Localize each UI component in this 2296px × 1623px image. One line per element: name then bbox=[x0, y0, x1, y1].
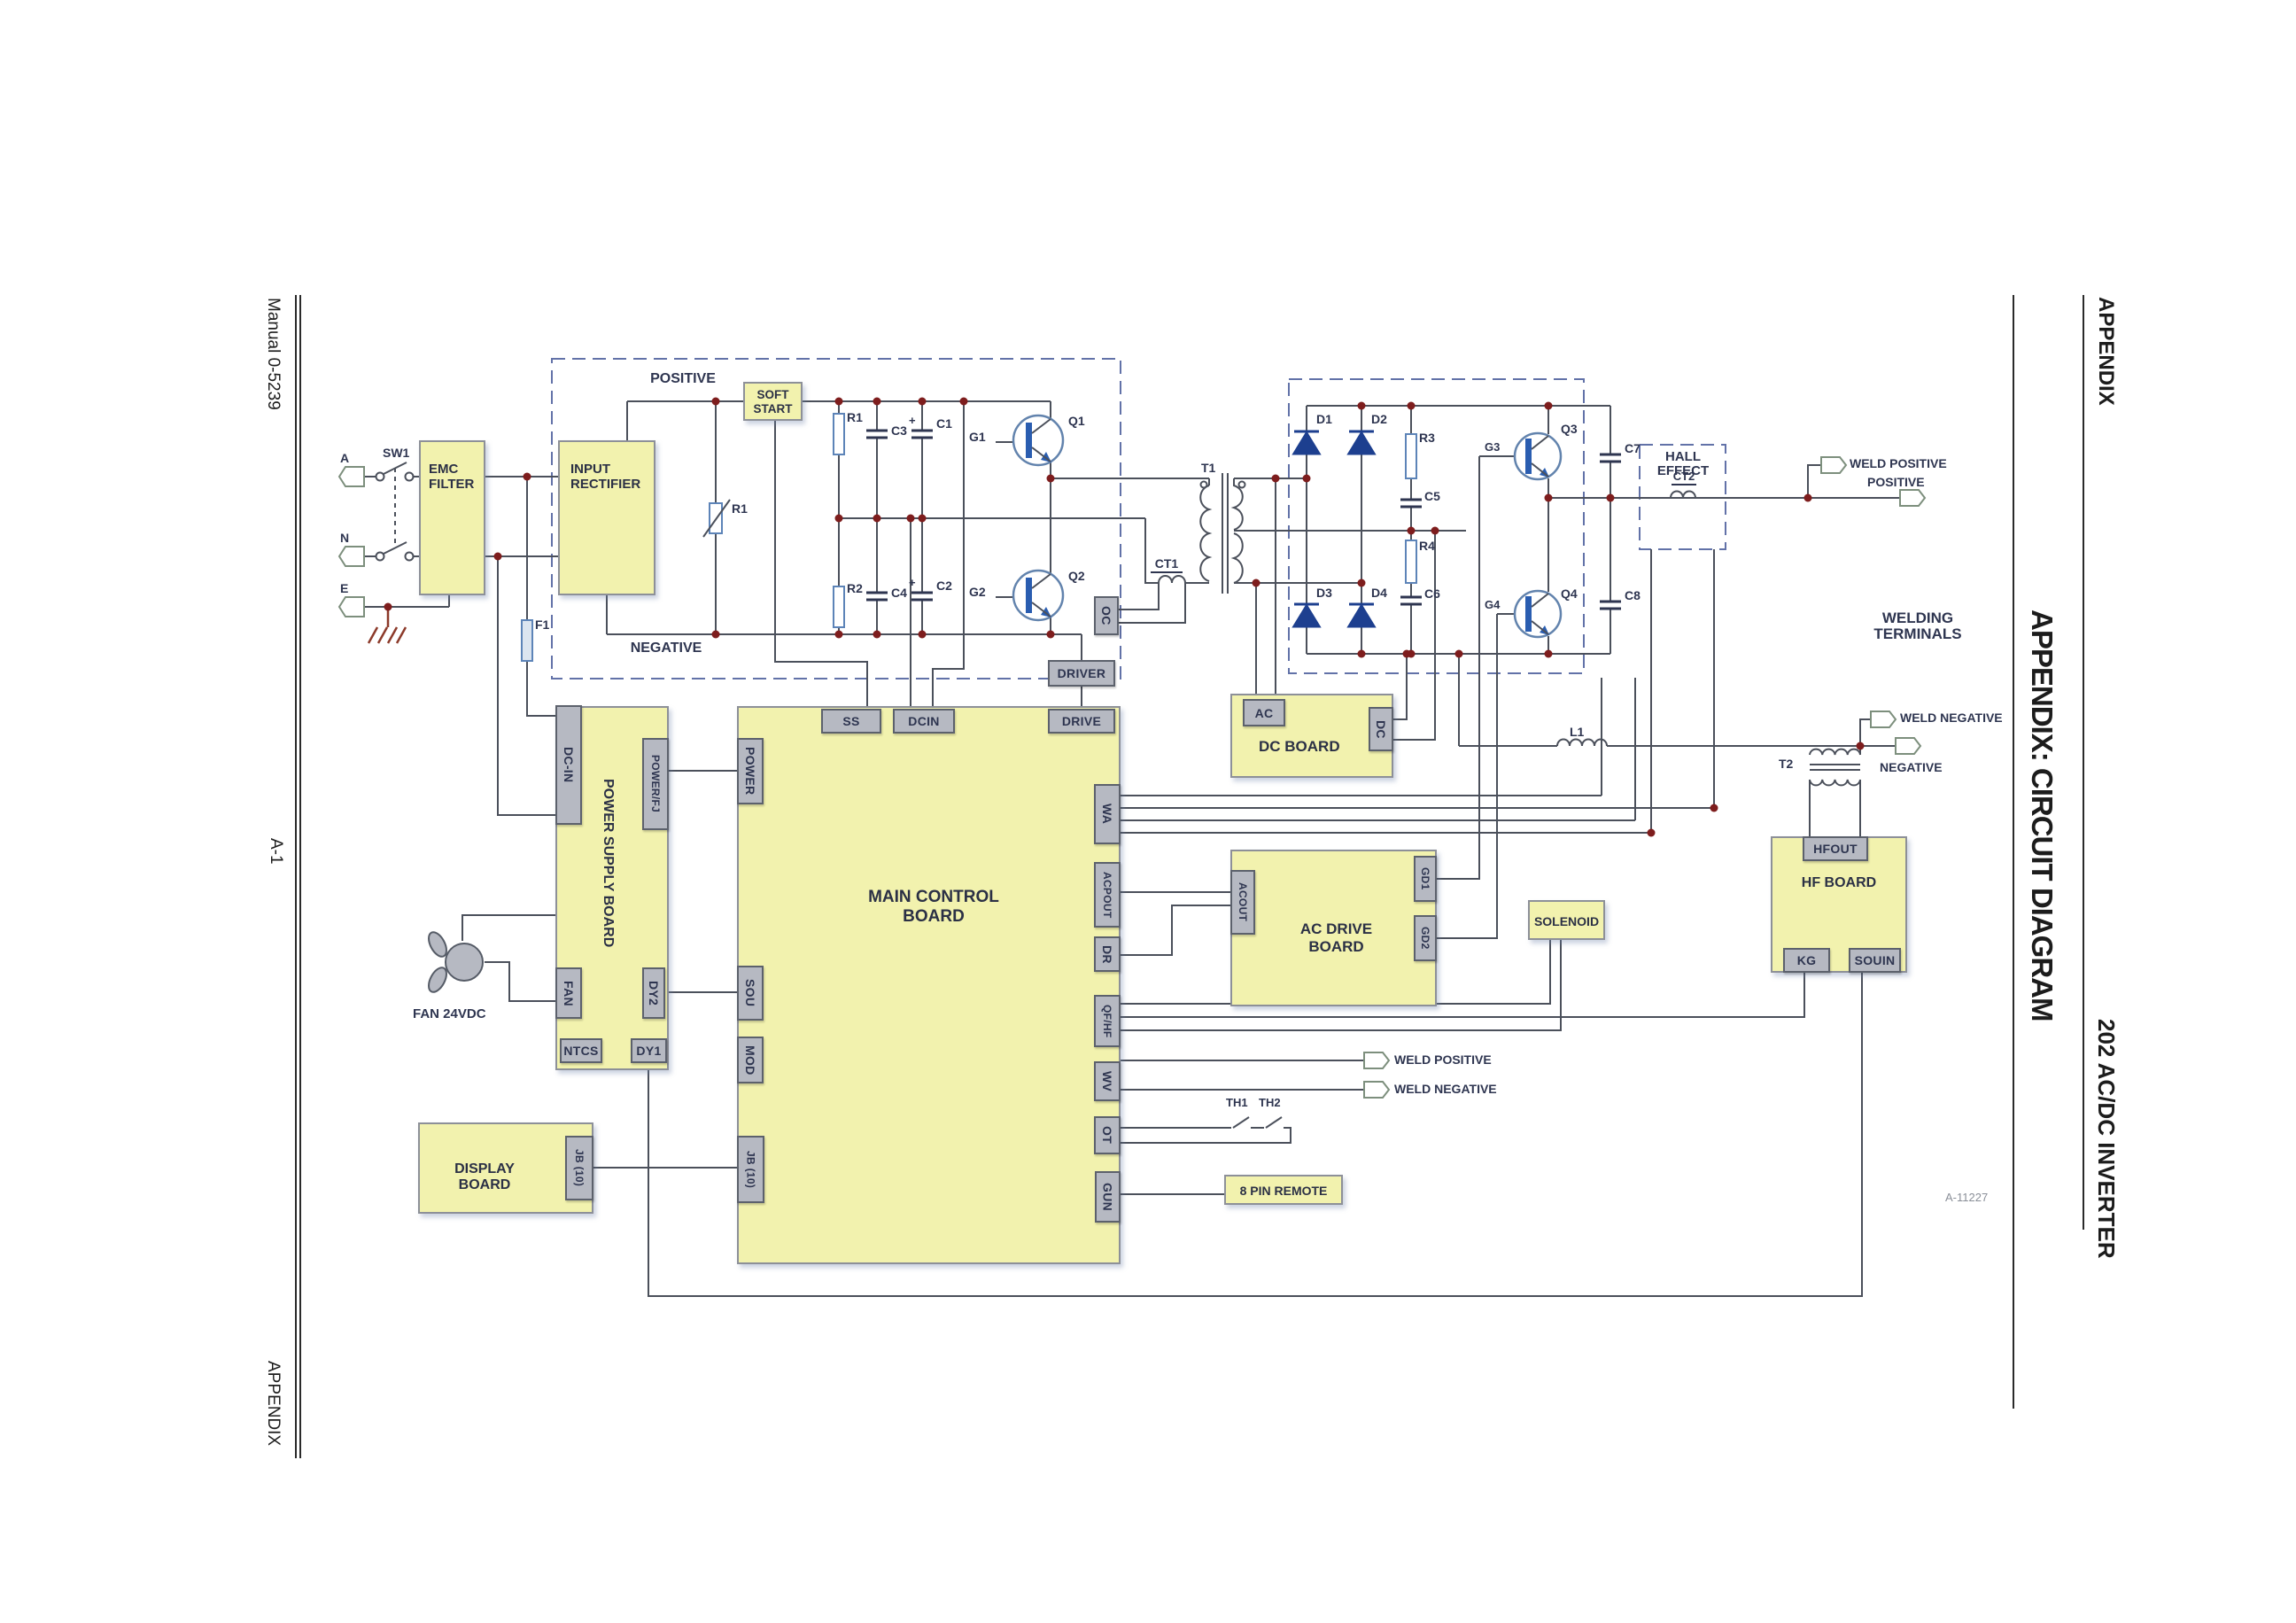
dc-in-connector: DC-IN bbox=[555, 705, 582, 825]
wv-connector: WV bbox=[1094, 1061, 1121, 1101]
positive-terminal-label: POSITIVE bbox=[1867, 476, 1922, 489]
sw1-label: SW1 bbox=[383, 447, 409, 460]
dc-board-label: DC BOARD bbox=[1259, 738, 1340, 756]
ntcs-connector: NTCS bbox=[560, 1038, 602, 1063]
terminal-negative bbox=[1896, 738, 1920, 754]
remote-label: 8 PIN REMOTE bbox=[1226, 1184, 1341, 1198]
hfout-connector: HFOUT bbox=[1803, 836, 1868, 861]
q3-label: Q3 bbox=[1561, 423, 1578, 436]
qfhf-connector: QF/HF bbox=[1094, 995, 1121, 1047]
gd2-connector: GD2 bbox=[1414, 915, 1437, 961]
input-a-label: A bbox=[340, 452, 349, 465]
fan-icon bbox=[425, 929, 483, 995]
l1-label: L1 bbox=[1570, 726, 1584, 739]
sidebar-left-page: A-1 bbox=[266, 838, 285, 865]
weld-negative-2-label: WELD NEGATIVE bbox=[1394, 1083, 1497, 1096]
c1-plus-sign: + bbox=[909, 415, 916, 427]
terminal-positive bbox=[1900, 490, 1925, 506]
positive-rail-label: POSITIVE bbox=[643, 371, 723, 386]
earth-ground-icon bbox=[368, 607, 406, 643]
th2-label: TH2 bbox=[1259, 1097, 1281, 1109]
terminal-weld-positive bbox=[1821, 457, 1846, 473]
terminal-weld-negative bbox=[1871, 711, 1896, 727]
d4-label: D4 bbox=[1371, 586, 1387, 600]
solenoid-label: SOLENOID bbox=[1530, 914, 1603, 928]
sidebar-right-title: APPENDIX: CIRCUIT DIAGRAM bbox=[2025, 610, 2059, 1021]
power-connector: POWER bbox=[737, 738, 764, 804]
power-fj-connector: POWER/FJ bbox=[642, 738, 669, 830]
fan-connector: FAN bbox=[555, 967, 582, 1019]
t1-core bbox=[1222, 473, 1228, 594]
c2-plus-sign: + bbox=[909, 577, 916, 589]
c5-label: C5 bbox=[1424, 490, 1440, 503]
dcin-connector: DCIN bbox=[893, 709, 955, 734]
th1-label: TH1 bbox=[1226, 1097, 1248, 1109]
hf-board-label: HF BOARD bbox=[1772, 875, 1905, 891]
gun-connector: GUN bbox=[1095, 1171, 1121, 1223]
t1-primary-coil bbox=[1200, 485, 1209, 581]
gd1-connector: GD1 bbox=[1414, 856, 1437, 902]
c1-label: C1 bbox=[936, 417, 952, 431]
souin-connector: SOUIN bbox=[1849, 948, 1901, 973]
weld-positive-2-label: WELD POSITIVE bbox=[1394, 1053, 1492, 1067]
r3-label: R3 bbox=[1419, 431, 1435, 445]
dc-connector: DC bbox=[1369, 707, 1393, 751]
ot-connector: OT bbox=[1094, 1116, 1121, 1154]
ct1-coil bbox=[1159, 576, 1185, 583]
terminal-weld-positive-2 bbox=[1364, 1052, 1389, 1068]
g1-label: G1 bbox=[969, 431, 986, 444]
g2-label: G2 bbox=[969, 586, 986, 599]
input-rectifier-label: INPUT RECTIFIER bbox=[570, 462, 640, 493]
acpout-connector: ACPOUT bbox=[1094, 862, 1121, 928]
power-supply-board-label: POWER SUPPLY BOARD bbox=[600, 779, 616, 947]
q2-label: Q2 bbox=[1068, 570, 1085, 583]
r1-label: R1 bbox=[847, 411, 863, 424]
varistor-r1-label: R1 bbox=[732, 502, 748, 516]
c7-label: C7 bbox=[1625, 442, 1641, 455]
drive-connector: DRIVE bbox=[1048, 709, 1115, 734]
t1-label: T1 bbox=[1201, 462, 1215, 475]
ss-connector: SS bbox=[821, 709, 881, 734]
g4-label: G4 bbox=[1485, 599, 1500, 611]
d3-label: D3 bbox=[1316, 586, 1332, 600]
c3-label: C3 bbox=[891, 424, 907, 438]
soft-start-box: SOFT START bbox=[743, 382, 803, 421]
main-control-board: MAIN CONTROL BOARD bbox=[737, 706, 1121, 1264]
t2-label: T2 bbox=[1779, 757, 1793, 771]
dy2-connector: DY2 bbox=[642, 967, 665, 1019]
jb10-display-connector: JB (10) bbox=[565, 1136, 593, 1200]
remote-box: 8 PIN REMOTE bbox=[1224, 1175, 1343, 1205]
soft-start-label: SOFT START bbox=[745, 388, 801, 415]
display-board-label: DISPLAY BOARD bbox=[427, 1161, 542, 1194]
t2-secondary-coil bbox=[1810, 780, 1860, 785]
wa-connector: WA bbox=[1094, 784, 1121, 844]
sidebar-right-product: 202 AC/DC INVERTER bbox=[2092, 1019, 2120, 1259]
welding-terminals-label: WELDING TERMINALS bbox=[1838, 610, 1997, 643]
ct2-coil bbox=[1671, 492, 1695, 499]
input-n-label: N bbox=[340, 532, 349, 545]
fan-24vdc-label: FAN 24VDC bbox=[413, 1007, 486, 1021]
sidebar-left-manual: Manual 0-5239 bbox=[263, 298, 283, 410]
terminal-a bbox=[339, 467, 364, 486]
terminal-n bbox=[339, 547, 364, 566]
weld-positive-top-label: WELD POSITIVE bbox=[1850, 457, 1947, 470]
sidebar-left-section: APPENDIX bbox=[263, 1361, 283, 1446]
mod-connector: MOD bbox=[737, 1037, 764, 1083]
c2-label: C2 bbox=[936, 579, 952, 593]
jb10-main-connector: JB (10) bbox=[737, 1136, 764, 1203]
dy1-connector: DY1 bbox=[631, 1038, 667, 1063]
ac-drive-board-label: AC DRIVE BOARD bbox=[1272, 920, 1400, 955]
sidebar-right-header: APPENDIX bbox=[2093, 297, 2118, 406]
f1-label: F1 bbox=[535, 618, 549, 632]
q4-label: Q4 bbox=[1561, 587, 1578, 601]
sou-connector: SOU bbox=[737, 966, 764, 1021]
weld-negative-mid-label: WELD NEGATIVE bbox=[1900, 711, 2003, 725]
main-control-board-label: MAIN CONTROL BOARD bbox=[845, 888, 1022, 927]
r2-label: R2 bbox=[847, 582, 863, 595]
driver-connector: DRIVER bbox=[1048, 660, 1115, 687]
doc-code: A-11227 bbox=[1945, 1192, 1988, 1204]
negative-rail-label: NEGATIVE bbox=[625, 641, 707, 656]
l1-coil bbox=[1557, 740, 1607, 747]
d1-label: D1 bbox=[1316, 413, 1332, 426]
d2-label: D2 bbox=[1371, 413, 1387, 426]
capacitor-icons bbox=[866, 431, 1621, 609]
emc-filter-board: EMC FILTER bbox=[419, 440, 485, 595]
acout-connector: ACOUT bbox=[1230, 870, 1255, 935]
terminal-e bbox=[339, 597, 364, 617]
emc-filter-label: EMC FILTER bbox=[429, 462, 474, 493]
c6-label: C6 bbox=[1424, 587, 1440, 601]
c8-label: C8 bbox=[1625, 589, 1641, 602]
t2-primary-coil bbox=[1810, 749, 1860, 755]
negative-terminal-label: NEGATIVE bbox=[1880, 761, 1943, 774]
terminal-weld-negative-2 bbox=[1364, 1082, 1389, 1098]
ct2-label: CT2 bbox=[1672, 470, 1696, 485]
solenoid-box: SOLENOID bbox=[1528, 900, 1605, 940]
q1-label: Q1 bbox=[1068, 415, 1085, 428]
c4-label: C4 bbox=[891, 586, 907, 600]
ct1-label: CT1 bbox=[1151, 557, 1183, 573]
ac-drive-board: AC DRIVE BOARD bbox=[1230, 850, 1437, 1006]
kg-connector: KG bbox=[1783, 948, 1830, 973]
fuse-f1-icon bbox=[522, 620, 532, 661]
input-rectifier-board: INPUT RECTIFIER bbox=[558, 440, 655, 595]
ac-connector: AC bbox=[1243, 699, 1285, 726]
dr-connector: DR bbox=[1094, 936, 1121, 972]
g3-label: G3 bbox=[1485, 441, 1500, 454]
wiring-layer bbox=[0, 0, 2296, 1623]
r4-label: R4 bbox=[1419, 540, 1435, 553]
circuit-diagram-page: EMC FILTER INPUT RECTIFIER SOFT START MA… bbox=[0, 0, 2296, 1623]
oc-connector: OC bbox=[1094, 596, 1119, 635]
input-e-label: E bbox=[340, 582, 348, 595]
